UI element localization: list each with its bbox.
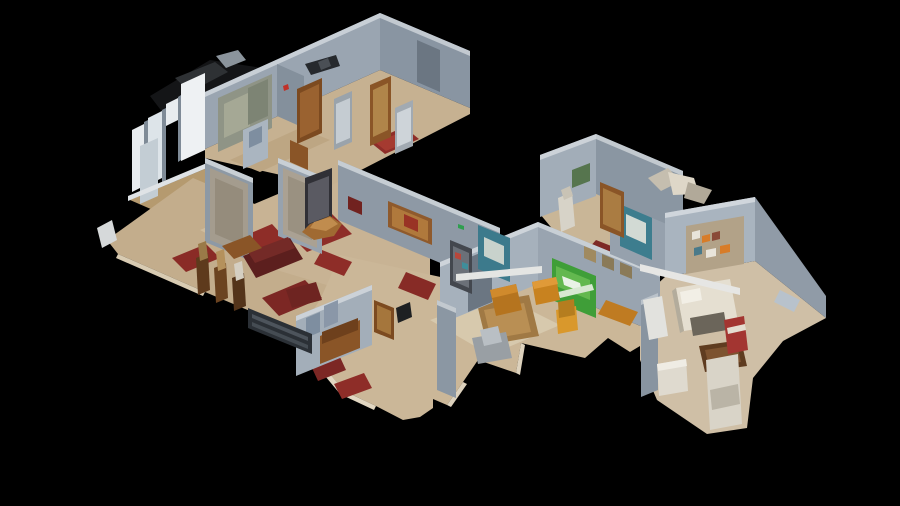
bulletin-board xyxy=(686,216,744,274)
window-pane-4 xyxy=(181,73,205,161)
red-striped-textile xyxy=(724,316,748,354)
dollhouse-3d-view[interactable]: 3D dollhouse cutaway view of a scanned a… xyxy=(0,0,900,506)
scan-artifact-3 xyxy=(684,182,712,204)
marble-hall-pier xyxy=(437,300,456,398)
silver-shelf-1-items xyxy=(336,98,350,144)
wood-cabinet-1-front xyxy=(300,84,319,138)
silver-shelf-2-items xyxy=(397,107,411,147)
etagere-items xyxy=(308,176,329,224)
window-pier-2 xyxy=(162,108,166,182)
china-cabinet-2-glass xyxy=(373,83,388,137)
yellow-chair-back xyxy=(558,299,575,318)
dollhouse-scene[interactable] xyxy=(0,0,900,506)
window-pier-3 xyxy=(178,95,181,162)
